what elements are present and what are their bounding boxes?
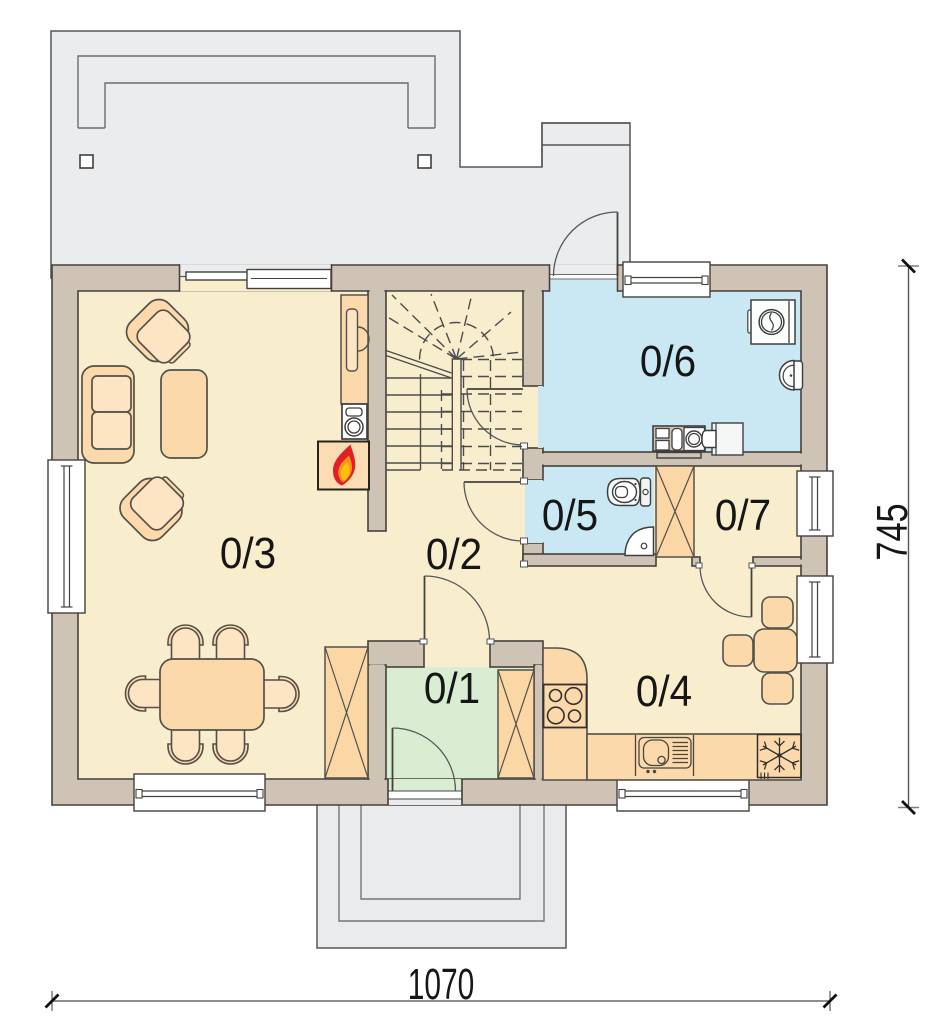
svg-text:745: 745 xyxy=(868,503,917,560)
svg-text:0/5: 0/5 xyxy=(542,490,598,539)
svg-text:0/2: 0/2 xyxy=(426,529,482,578)
svg-text:1070: 1070 xyxy=(408,959,475,1008)
svg-text:0/6: 0/6 xyxy=(640,336,696,385)
svg-text:0/7: 0/7 xyxy=(715,490,771,539)
svg-text:0/4: 0/4 xyxy=(636,666,692,715)
svg-text:0/3: 0/3 xyxy=(220,528,276,577)
svg-text:0/1: 0/1 xyxy=(424,663,480,712)
